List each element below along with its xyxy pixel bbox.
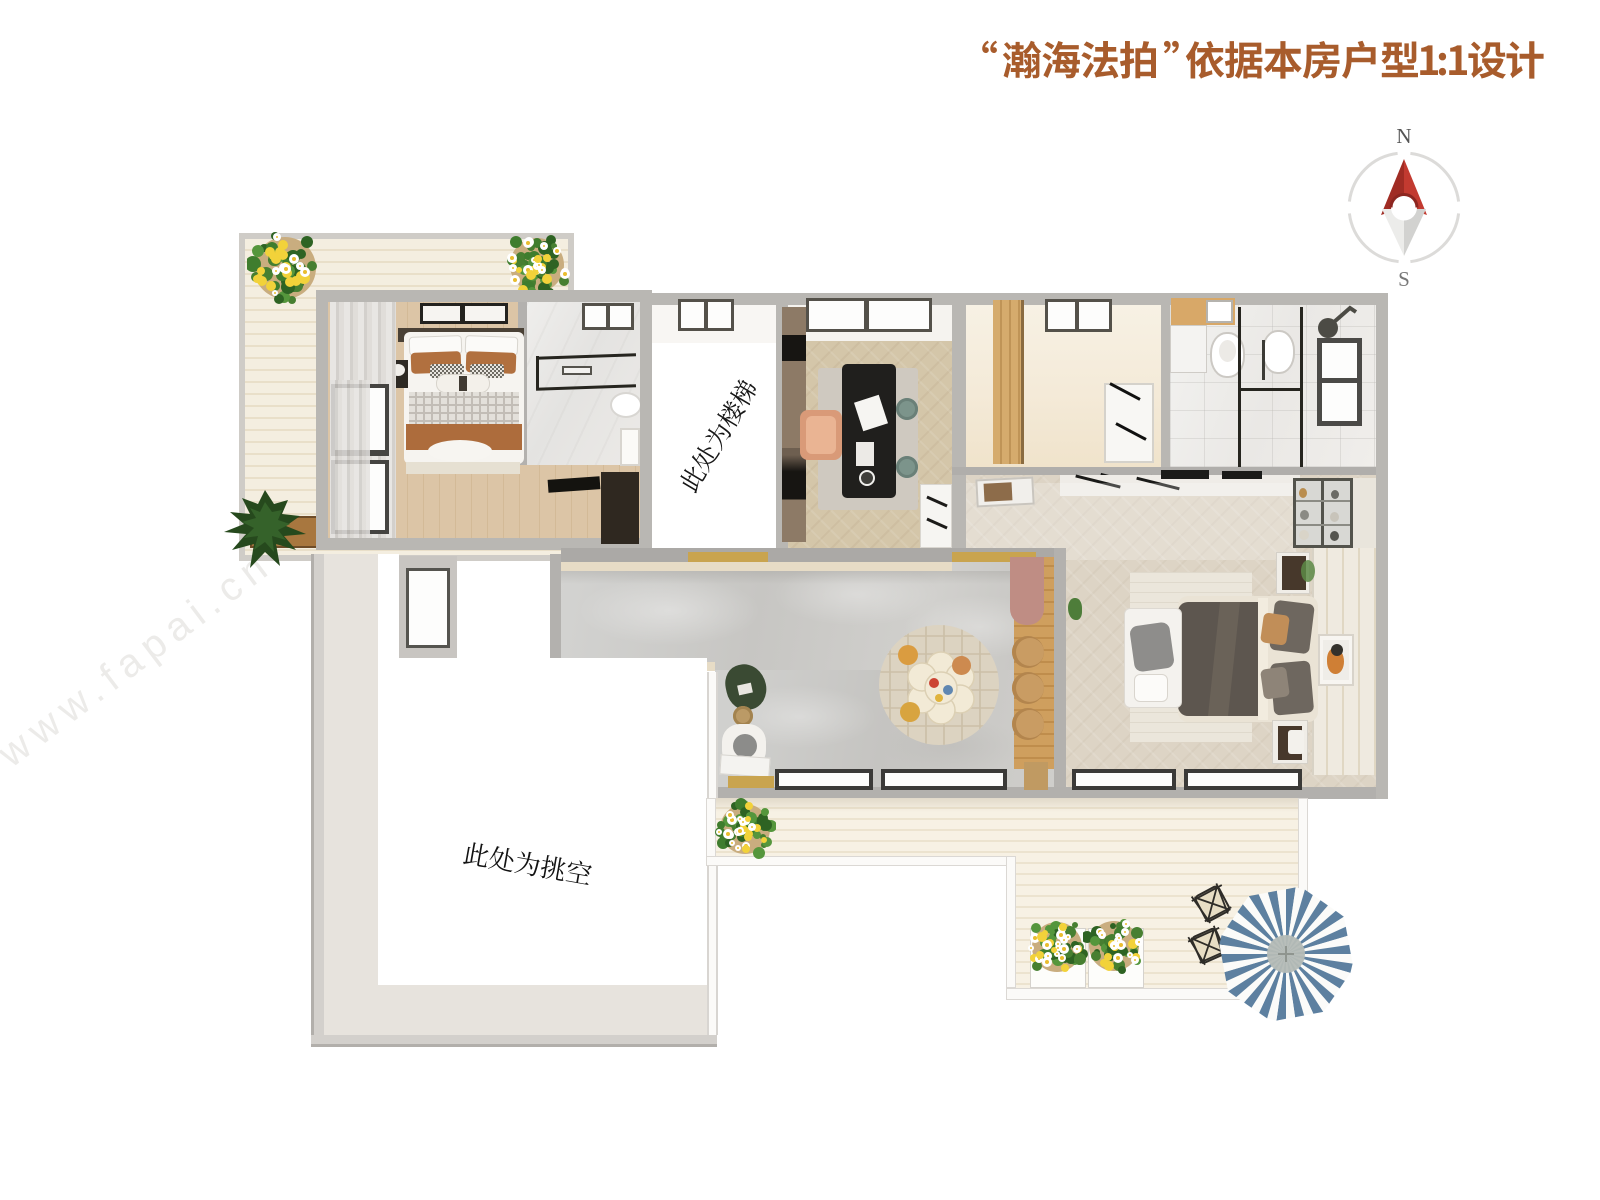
svg-text:S: S	[1398, 267, 1410, 290]
svg-text:N: N	[1396, 125, 1411, 148]
